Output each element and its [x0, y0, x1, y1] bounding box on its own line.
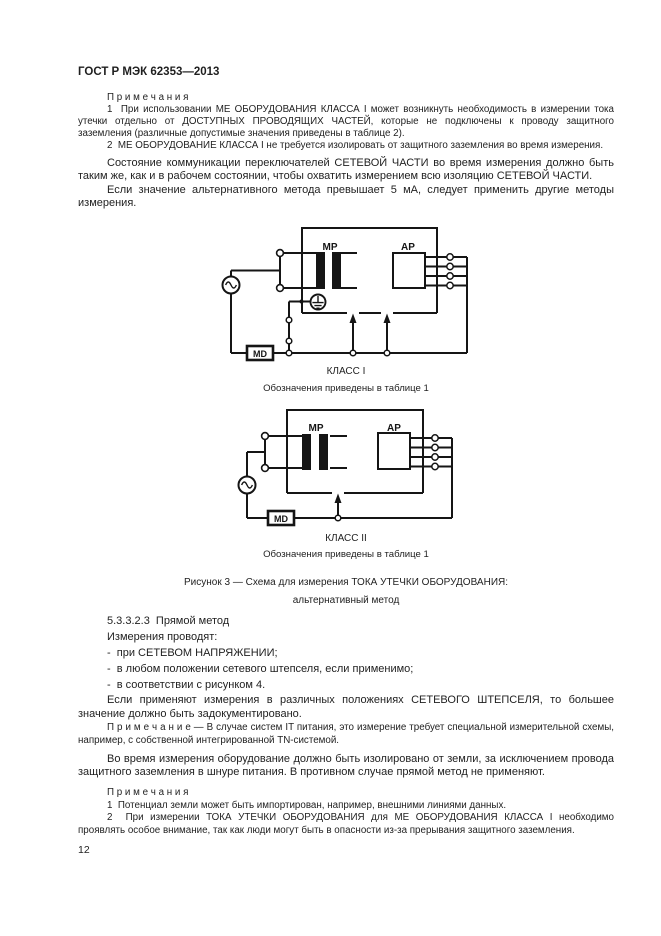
wires: [247, 410, 452, 518]
paragraph-isolation: Во время измерения оборудование должно б…: [78, 753, 614, 780]
notes-top: П р и м е ч а н и я 1 При использовании …: [78, 92, 614, 152]
paragraph-mains-switch: Состояние коммуникации переключателей СЕ…: [78, 157, 614, 184]
output-terminals: [432, 435, 438, 470]
protective-earth-icon: [300, 295, 326, 310]
paragraph-5ma: Если значение альтернативного метода пре…: [78, 184, 614, 211]
note-item: 1 При использовании МЕ ОБОРУДОВАНИЯ КЛАС…: [78, 104, 614, 140]
note-item: 2 МЕ ОБОРУДОВАНИЕ КЛАССА I не требуется …: [78, 140, 614, 152]
class-ii-symbols-note: Обозначения приведены в таблице 1: [78, 549, 614, 560]
document-page: ГОСТ Р МЭК 62353—2013 П р и м е ч а н и …: [0, 0, 661, 936]
class-label: КЛАСС I: [78, 366, 614, 377]
connector-dot: [335, 515, 341, 521]
transformer-symbol: [302, 434, 328, 470]
ap-label: АР: [387, 423, 401, 434]
ac-source-icon: [239, 477, 256, 494]
bottom-rail: [247, 438, 452, 518]
applied-part-box: [393, 253, 425, 288]
mp-label: МР: [323, 242, 338, 253]
bullet-item: - в соответствии с рисунком 4.: [78, 679, 614, 692]
output-lines: [410, 438, 452, 467]
md-label: MD: [274, 514, 288, 524]
ac-source-icon: [223, 277, 240, 294]
notes-label: П р и м е ч а н и я: [78, 92, 614, 104]
measurement-arrow: [335, 494, 342, 504]
class-label: КЛАСС II: [78, 533, 614, 544]
class-i-diagram: МР АР MD: [205, 220, 480, 362]
output-terminals: [447, 254, 453, 289]
class-ii-diagram: МР АР MD: [225, 404, 465, 532]
bullet-item: - в любом положении сетевого штепселя, е…: [78, 663, 614, 676]
transformer-symbol: [316, 252, 341, 289]
section-paragraph: Если применяют измерения в различных пол…: [78, 694, 614, 721]
pe-branch-wire: [289, 302, 311, 354]
measurement-arrows: [350, 314, 391, 324]
figure-caption-line2-wrap: альтернативный метод: [78, 595, 614, 606]
output-lines: [425, 257, 467, 286]
ap-label: АР: [401, 242, 415, 253]
note-item: 2 При измерении ТОКА УТЕЧКИ ОБОРУДОВАНИЯ…: [78, 812, 614, 837]
md-label: MD: [253, 349, 267, 359]
class-ii-caption: КЛАСС II: [78, 533, 614, 544]
bullet-item: - при СЕТЕВОМ НАПРЯЖЕНИИ;: [78, 647, 614, 660]
figure-caption-line2: альтернативный метод: [78, 595, 614, 606]
figure-caption: Рисунок 3 — Схема для измерения ТОКА УТЕ…: [78, 577, 614, 588]
arrow-stems: [353, 322, 387, 353]
applied-part-box: [378, 433, 410, 469]
section-heading: 5.3.3.2.3 Прямой метод: [78, 615, 614, 628]
note-it-systems: П р и м е ч а н и е — В случае систем IT…: [78, 722, 614, 747]
intro-paragraphs: Состояние коммуникации переключателей СЕ…: [78, 157, 614, 210]
class-i-symbols-note: Обозначения приведены в таблице 1: [78, 383, 614, 394]
class-i-caption: КЛАСС I: [78, 366, 614, 377]
figure-caption-line1: Рисунок 3 — Схема для измерения ТОКА УТЕ…: [78, 577, 614, 588]
notes-label: П р и м е ч а н и я: [78, 787, 614, 800]
notes-bottom: П р и м е ч а н и я 1 Потенциал земли мо…: [78, 787, 614, 837]
section-intro: Измерения проводят:: [78, 631, 614, 644]
note-item: 1 Потенциал земли может быть импортирова…: [78, 800, 614, 813]
connector-dots: [286, 317, 390, 356]
page-title: ГОСТ Р МЭК 62353—2013: [78, 66, 219, 78]
page-number: 12: [78, 844, 90, 856]
section-direct-method: 5.3.3.2.3 Прямой метод Измерения проводя…: [78, 615, 614, 721]
mp-label: МР: [309, 423, 324, 434]
wires: [231, 228, 467, 353]
